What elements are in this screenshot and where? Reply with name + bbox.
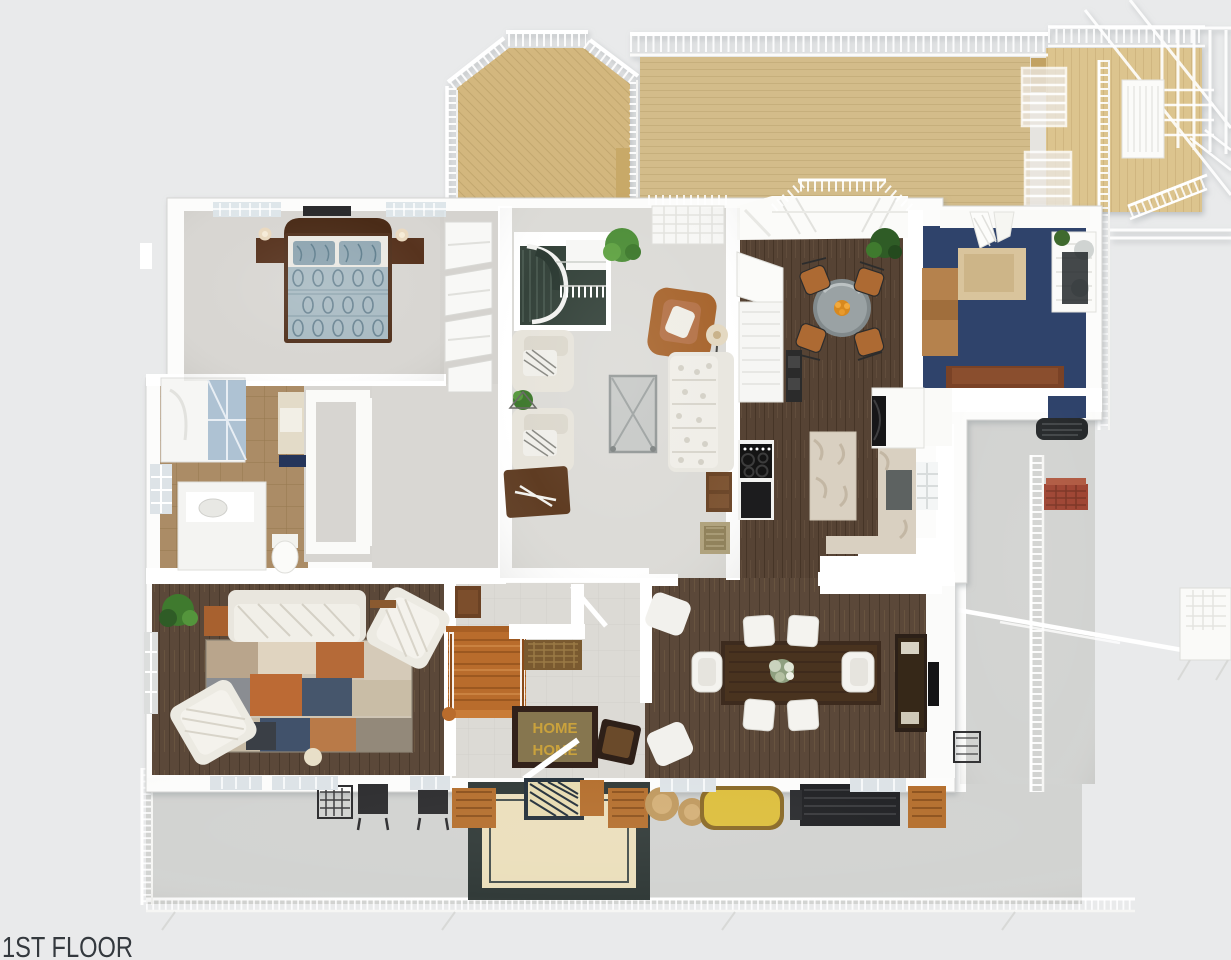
svg-text:HOME: HOME bbox=[533, 720, 578, 737]
svg-text:1ST FLOOR: 1ST FLOOR bbox=[2, 932, 133, 960]
